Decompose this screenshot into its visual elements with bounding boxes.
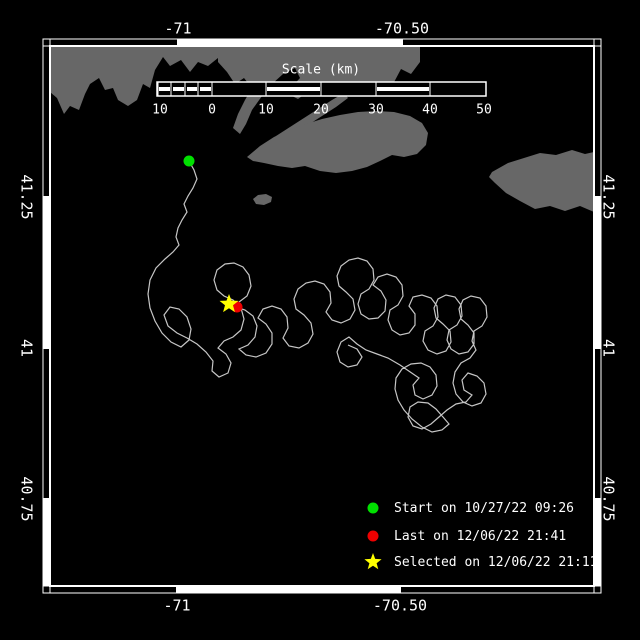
scalebar-stripe bbox=[200, 87, 211, 91]
scalebar-tick-label: 20 bbox=[313, 104, 329, 117]
scalebar-tick-label: 10 bbox=[152, 104, 168, 117]
legend-label: Start on 10/27/22 09:26 bbox=[394, 501, 574, 516]
scalebar-stripe bbox=[267, 87, 320, 91]
axis-tick-label-left: 41 bbox=[19, 339, 34, 357]
axis-tick-label-bottom: -70.50 bbox=[373, 599, 427, 614]
track-map-window: -71-70.50-71-70.5041.254140.7541.254140.… bbox=[0, 0, 640, 640]
axis-tick-label-right: 41 bbox=[601, 339, 616, 357]
border-band-white-segment bbox=[178, 39, 402, 46]
scalebar-tick-label: 40 bbox=[422, 104, 438, 117]
axis-tick-label-right: 41.25 bbox=[601, 174, 616, 219]
landmass-mainland-west bbox=[50, 46, 218, 114]
start-position-marker[interactable] bbox=[184, 156, 195, 167]
border-band-white-segment bbox=[177, 586, 400, 593]
scalebar-stripe bbox=[187, 87, 197, 91]
legend-label: Selected on 12/06/22 21:11 bbox=[394, 555, 598, 570]
scalebar-stripe bbox=[159, 87, 170, 91]
track-layer bbox=[148, 161, 487, 432]
legend-label: Last on 12/06/22 21:41 bbox=[394, 529, 566, 544]
star-icon bbox=[360, 551, 386, 573]
axis-tick-label-left: 41.25 bbox=[19, 174, 34, 219]
scalebar-tick-label: 30 bbox=[368, 104, 384, 117]
scalebar-tick-label: 50 bbox=[476, 104, 492, 117]
dot-icon bbox=[360, 525, 386, 547]
scalebar bbox=[157, 82, 486, 96]
landmass-small-island bbox=[253, 194, 272, 205]
axis-tick-label-right: 40.75 bbox=[601, 476, 616, 521]
scalebar-title: Scale (km) bbox=[282, 64, 360, 77]
axis-tick-label-left: 40.75 bbox=[19, 476, 34, 521]
landmass-marthas-vineyard bbox=[247, 111, 428, 173]
landmass-nantucket bbox=[489, 150, 594, 212]
border-band-white-segment bbox=[43, 499, 50, 586]
axis-tick-label-top: -70.50 bbox=[375, 22, 429, 37]
dot-icon bbox=[360, 497, 386, 519]
border-band-white-segment bbox=[43, 197, 50, 348]
legend-row: Start on 10/27/22 09:26 bbox=[360, 497, 574, 519]
scalebar-stripe bbox=[173, 87, 184, 91]
scalebar-stripe bbox=[377, 87, 429, 91]
scalebar-tick-label: 10 bbox=[258, 104, 274, 117]
legend-row: Selected on 12/06/22 21:11 bbox=[360, 551, 598, 573]
axis-tick-label-bottom: -71 bbox=[163, 599, 190, 614]
track-path[interactable] bbox=[148, 161, 487, 432]
axis-tick-label-top: -71 bbox=[164, 22, 191, 37]
legend-row: Last on 12/06/22 21:41 bbox=[360, 525, 566, 547]
scalebar-tick-label: 0 bbox=[208, 104, 216, 117]
border-band-white-segment bbox=[594, 197, 601, 348]
marker-layer bbox=[184, 156, 243, 313]
